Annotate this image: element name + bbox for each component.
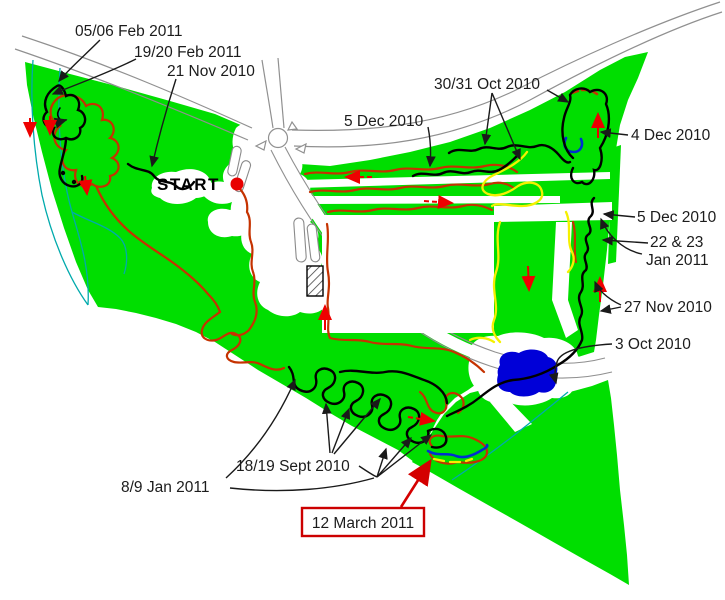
start-label: START: [157, 175, 220, 194]
field-clearing: [322, 215, 494, 333]
clearing-west-2: [208, 209, 251, 237]
label-dec-5-right: 5 Dec 2010: [637, 209, 717, 226]
roundabout: [269, 129, 288, 148]
leader-jan89-b: [230, 478, 374, 491]
label-jan-22-23-line1: 22 & 23: [650, 234, 703, 251]
label-feb-05-06: 05/06 Feb 2011: [75, 23, 182, 40]
label-oct-30-31: 30/31 Oct 2010: [434, 76, 540, 93]
path-band-east-2: [310, 196, 560, 204]
label-nov-27: 27 Nov 2010: [624, 299, 712, 316]
leader-feb0506: [59, 40, 100, 81]
march12-arrow: [401, 463, 429, 507]
roundabout-island-3: [296, 144, 306, 153]
label-dec-5-top: 5 Dec 2010: [344, 113, 424, 130]
course-map-svg: 05/06 Feb 2011 19/20 Feb 2011 21 Nov 201…: [0, 0, 725, 600]
label-sept-18-19: 18/19 Sept 2010: [236, 458, 350, 475]
label-nov-21: 21 Nov 2010: [167, 63, 255, 80]
building-hatched: [307, 266, 323, 296]
leader-nov27-a: [601, 307, 621, 311]
label-12-march: 12 March 2011: [312, 515, 414, 532]
road-north-stub-left: [262, 60, 273, 128]
leader-sept-stem: [359, 466, 377, 477]
road-north-stub-right: [278, 58, 284, 128]
label-dec-4: 4 Dec 2010: [631, 127, 711, 144]
start-dot: [231, 178, 244, 191]
label-jan-22-23-line2: Jan 2011: [646, 252, 709, 269]
label-oct-3: 3 Oct 2010: [615, 336, 691, 353]
label-feb-19-20: 19/20 Feb 2011: [134, 44, 241, 61]
course-map: 05/06 Feb 2011 19/20 Feb 2011 21 Nov 201…: [0, 0, 725, 600]
label-jan-8-9: 8/9 Jan 2011: [121, 479, 209, 496]
roundabout-island-2: [288, 122, 297, 130]
